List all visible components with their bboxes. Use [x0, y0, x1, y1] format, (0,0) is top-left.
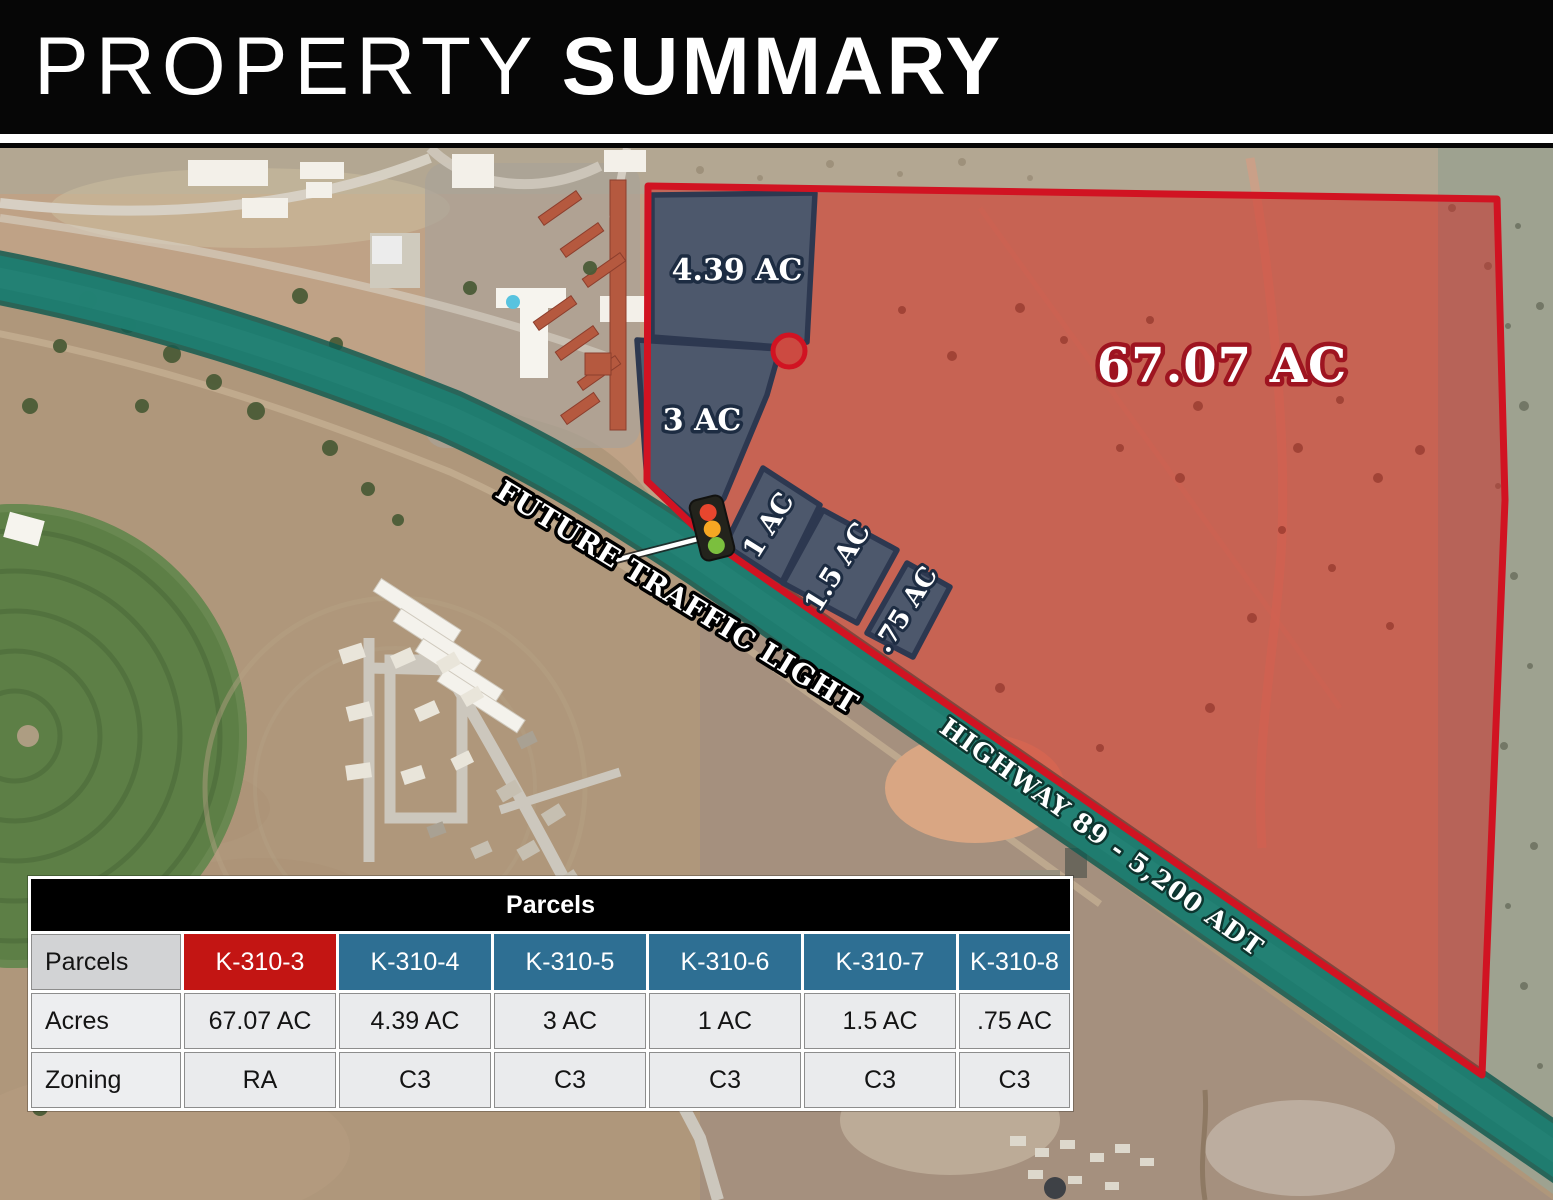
cell-zoning-k310-6: C3 [649, 1052, 801, 1108]
parcels-table: Parcels Parcels K-310-3 K-310-4 K-310-5 … [28, 876, 1073, 1111]
label-parcel-3: 3 AC [663, 403, 741, 438]
property-summary-slide: PROPERTY SUMMARY [0, 0, 1553, 1200]
cell-zoning-k310-4: C3 [339, 1052, 491, 1108]
cell-parcel-k310-3: K-310-3 [184, 934, 336, 990]
cell-acres-k310-7: 1.5 AC [804, 993, 956, 1049]
cell-parcel-k310-5: K-310-5 [494, 934, 646, 990]
header-bar: PROPERTY SUMMARY [0, 0, 1553, 134]
cell-parcel-k310-6: K-310-6 [649, 934, 801, 990]
cell-zoning-k310-5: C3 [494, 1052, 646, 1108]
cell-parcel-k310-4: K-310-4 [339, 934, 491, 990]
cell-parcel-k310-7: K-310-7 [804, 934, 956, 990]
pool [506, 295, 520, 309]
cell-acres-k310-8: .75 AC [959, 993, 1070, 1049]
row-label-zoning: Zoning [31, 1052, 181, 1108]
cell-acres-k310-4: 4.39 AC [339, 993, 491, 1049]
parcels-table-title: Parcels [31, 879, 1070, 931]
page-title-light: PROPERTY [34, 26, 540, 108]
label-parcel-4-39: 4.39 AC [672, 253, 803, 288]
culdesac-notch [773, 335, 805, 367]
header-divider-line [0, 134, 1553, 143]
cell-parcel-k310-8: K-310-8 [959, 934, 1070, 990]
page-header: PROPERTY SUMMARY [0, 0, 1553, 148]
parcels-table-grid: Parcels K-310-3 K-310-4 K-310-5 K-310-6 … [31, 934, 1070, 1108]
cell-acres-k310-3: 67.07 AC [184, 993, 336, 1049]
cell-zoning-k310-3: RA [184, 1052, 336, 1108]
cell-zoning-k310-8: C3 [959, 1052, 1070, 1108]
row-label-acres: Acres [31, 993, 181, 1049]
row-label-parcels: Parcels [31, 934, 181, 990]
cell-zoning-k310-7: C3 [804, 1052, 956, 1108]
cell-acres-k310-6: 1 AC [649, 993, 801, 1049]
label-parcel-67-07: 67.07 AC [1097, 338, 1347, 394]
page-title-bold: SUMMARY [562, 26, 1004, 108]
cell-acres-k310-5: 3 AC [494, 993, 646, 1049]
